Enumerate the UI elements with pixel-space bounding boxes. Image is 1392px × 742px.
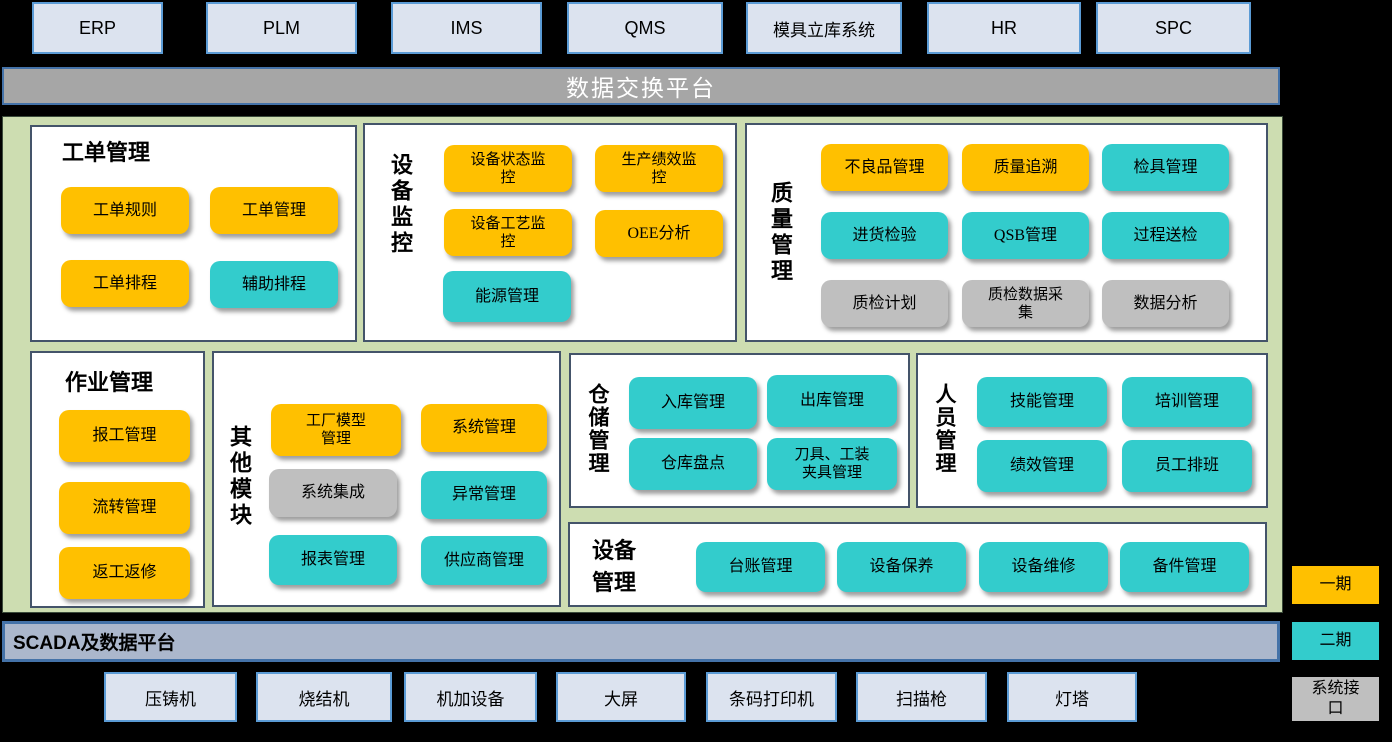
module-button: 不良品管理 [821,144,948,191]
system-box-plm: PLM [206,2,357,54]
module-button: 辅助排程 [210,261,338,308]
section-work-order: 工单管理 工单规则 工单管理 工单排程 辅助排程 [30,125,357,342]
section-quality: 质量管理 不良品管理 质量追溯 检具管理 进货检验 QSB管理 过程送检 质检计… [745,123,1268,342]
module-button: 检具管理 [1102,144,1229,191]
architecture-diagram: ERP PLM IMS QMS 模具立库系统 HR SPC 数据交换平台 工单管… [0,0,1392,742]
module-button: 报表管理 [269,535,397,585]
module-button: 工厂模型 管理 [271,404,401,456]
module-button: 设备工艺监 控 [444,209,572,256]
module-button: 员工排班 [1122,440,1252,492]
module-button: 设备状态监 控 [444,145,572,192]
system-box-ims: IMS [391,2,542,54]
section-title: 其他模块 [228,425,250,529]
module-button: 质检计划 [821,280,948,327]
module-button: 质量追溯 [962,144,1089,191]
module-button: 培训管理 [1122,377,1252,427]
scada-platform-bar: SCADA及数据平台 [2,621,1280,662]
module-button: 出库管理 [767,375,897,427]
module-button: 能源管理 [443,271,571,322]
section-title: 设备管理 [592,535,642,599]
legend-phase2: 二期 [1292,622,1379,660]
legend-phase1: 一期 [1292,566,1379,604]
module-button: 工单规则 [61,187,189,234]
module-button: 异常管理 [421,471,547,519]
section-equipment-management: 设备管理 台账管理 设备保养 设备维修 备件管理 [568,522,1267,607]
module-button: 工单管理 [210,187,338,234]
system-box-qms: QMS [567,2,723,54]
module-button: QSB管理 [962,212,1089,259]
module-button: 生产绩效监 控 [595,145,723,192]
section-title: 设备监控 [389,153,411,257]
module-button: 数据分析 [1102,280,1229,327]
system-box-spc: SPC [1096,2,1251,54]
module-button: 备件管理 [1120,542,1249,592]
section-operation: 作业管理 报工管理 流转管理 返工返修 [30,351,205,608]
module-button: 报工管理 [59,410,190,462]
system-box-hr: HR [927,2,1081,54]
module-button: 系统管理 [421,404,547,452]
device-box-sintering: 烧结机 [256,672,392,722]
section-warehouse: 仓储管理 入库管理 出库管理 仓库盘点 刀具、工装 夹具管理 [569,353,910,508]
module-button: 仓库盘点 [629,438,757,490]
device-box-scanner-gun: 扫描枪 [856,672,987,722]
device-box-light-tower: 灯塔 [1007,672,1137,722]
module-button: 台账管理 [696,542,825,592]
system-box-erp: ERP [32,2,163,54]
module-button: 入库管理 [629,377,757,429]
module-button: 刀具、工装 夹具管理 [767,438,897,490]
module-button: 系统集成 [269,469,397,517]
system-box-mold-warehouse: 模具立库系统 [746,2,902,54]
module-button: 流转管理 [59,482,190,534]
module-button: 质检数据采 集 [962,280,1089,327]
module-button: 供应商管理 [421,536,547,585]
section-title: 仓储管理 [587,383,608,475]
section-other-modules: 其他模块 工厂模型 管理 系统管理 系统集成 异常管理 报表管理 供应商管理 [212,351,561,607]
section-personnel: 人员管理 技能管理 培训管理 绩效管理 员工排班 [916,353,1268,508]
device-box-machining: 机加设备 [404,672,537,722]
device-box-die-casting: 压铸机 [104,672,237,722]
section-equipment-monitoring: 设备监控 设备状态监 控 生产绩效监 控 设备工艺监 控 OEE分析 能源管理 [363,123,737,342]
section-title: 作业管理 [65,365,153,397]
module-button: OEE分析 [595,210,723,257]
module-button: 进货检验 [821,212,948,259]
module-button: 过程送检 [1102,212,1229,259]
module-button: 工单排程 [61,260,189,307]
section-title: 工单管理 [62,135,150,167]
module-button: 技能管理 [977,377,1107,427]
device-box-barcode-printer: 条码打印机 [706,672,837,722]
module-button: 绩效管理 [977,440,1107,492]
module-button: 返工返修 [59,547,190,599]
data-exchange-platform-bar: 数据交换平台 [2,67,1280,105]
device-box-big-screen: 大屏 [556,672,686,722]
section-title: 人员管理 [934,383,955,475]
module-button: 设备维修 [979,542,1108,592]
module-button: 设备保养 [837,542,966,592]
legend-system-interface: 系统接 口 [1292,677,1379,721]
section-title: 质量管理 [769,181,791,285]
